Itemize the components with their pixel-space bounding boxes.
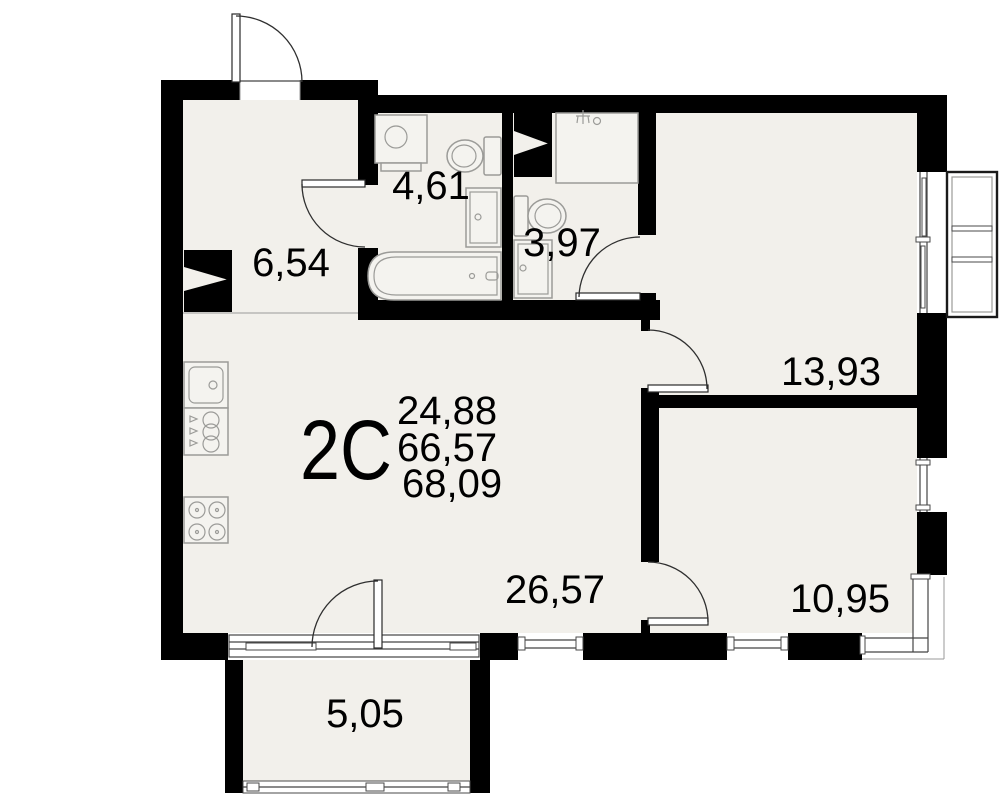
bathtub-outline: [368, 252, 501, 300]
wall-segment: [788, 633, 862, 660]
exterior-basket-frame: [947, 172, 997, 317]
window: [917, 458, 947, 512]
bedroom2-door-leaf: [648, 618, 708, 625]
room-area-label-bedroom1: 13,93: [781, 350, 881, 394]
wall-segment: [358, 300, 660, 320]
wall-segment: [161, 80, 183, 660]
bathroom-door-leaf: [302, 180, 365, 187]
window-sash-mark: [518, 637, 525, 650]
wall-segment: [917, 512, 947, 575]
kitchen-sink-icon: [184, 362, 228, 408]
entrance-door-leaf: [232, 14, 240, 82]
toilet-tank: [484, 137, 501, 175]
wall-segment: [365, 95, 947, 113]
window-sash-mark: [911, 574, 930, 579]
window-sash-mark: [922, 178, 926, 236]
window: [727, 633, 788, 660]
window-sash-mark: [366, 783, 384, 791]
wall-segment: [641, 318, 650, 331]
wall-segment: [650, 395, 917, 408]
room-area-label-hall: 6,54: [252, 241, 330, 285]
wall-segment: [638, 113, 656, 235]
corner-glazing-bg: [862, 633, 913, 660]
exterior-basket: [947, 172, 997, 317]
wall-segment: [641, 388, 659, 562]
wall-segment: [470, 658, 490, 793]
window-sash-mark: [916, 505, 930, 510]
corner-glazing-bg: [913, 575, 947, 660]
window-sash-mark: [576, 637, 583, 650]
entrance-opening: [240, 80, 300, 100]
window-sash-mark: [448, 783, 460, 791]
wall-segment: [638, 293, 656, 305]
window-sash-mark: [860, 636, 865, 654]
window-sash-mark: [246, 643, 316, 650]
wall-segment: [161, 633, 228, 660]
wall-segment: [502, 113, 513, 300]
room-area-label-living: 26,57: [505, 568, 605, 612]
exterior-basket-divider: [952, 257, 992, 262]
window-sash-mark: [727, 637, 734, 650]
washing-machine-icon: [375, 115, 427, 171]
window-sash-mark: [450, 643, 476, 650]
unit-total-area: 68,09: [402, 462, 502, 506]
wall-segment: [583, 633, 727, 660]
balcony-door-leaf: [374, 580, 382, 648]
exterior-basket-divider: [952, 226, 992, 231]
window-sash-mark: [916, 237, 930, 242]
wall-segment: [917, 95, 947, 172]
floor-plan-svg: 6,54 4,61 3,97 13,93 26,57 10,95 5,05 2C…: [0, 0, 1000, 800]
door-swing-arc: [236, 16, 302, 82]
wall-segment: [480, 633, 518, 660]
window-sash-mark: [921, 246, 925, 308]
wc-door-leaf: [576, 293, 640, 300]
shower-icon: [556, 110, 638, 183]
sink-body: [466, 188, 501, 247]
sink-icon: [466, 188, 501, 247]
wall-segment: [917, 313, 947, 458]
floor-plan-page: 6,54 4,61 3,97 13,93 26,57 10,95 5,05 2C…: [0, 0, 1000, 800]
stove-icon: [184, 497, 228, 543]
washing-machine-body: [375, 115, 427, 163]
window: [518, 633, 583, 660]
window-sash-mark: [247, 783, 259, 791]
bedroom1-door-leaf: [648, 385, 708, 392]
room-area-label-wc: 3,97: [523, 221, 601, 265]
window-sash-mark: [916, 460, 930, 465]
room-floors: [161, 80, 947, 783]
window-sash-mark: [781, 637, 788, 650]
wall-segment: [225, 658, 243, 793]
room-area-label-bathroom: 4,61: [392, 164, 470, 208]
bathtub-icon: [368, 252, 501, 300]
shower-tray: [556, 113, 638, 183]
unit-type-label: 2C: [300, 403, 392, 497]
dish-rack-icon: [184, 408, 228, 455]
room-area-label-bedroom2: 10,95: [790, 577, 890, 621]
room-area-label-balcony: 5,05: [326, 692, 404, 736]
